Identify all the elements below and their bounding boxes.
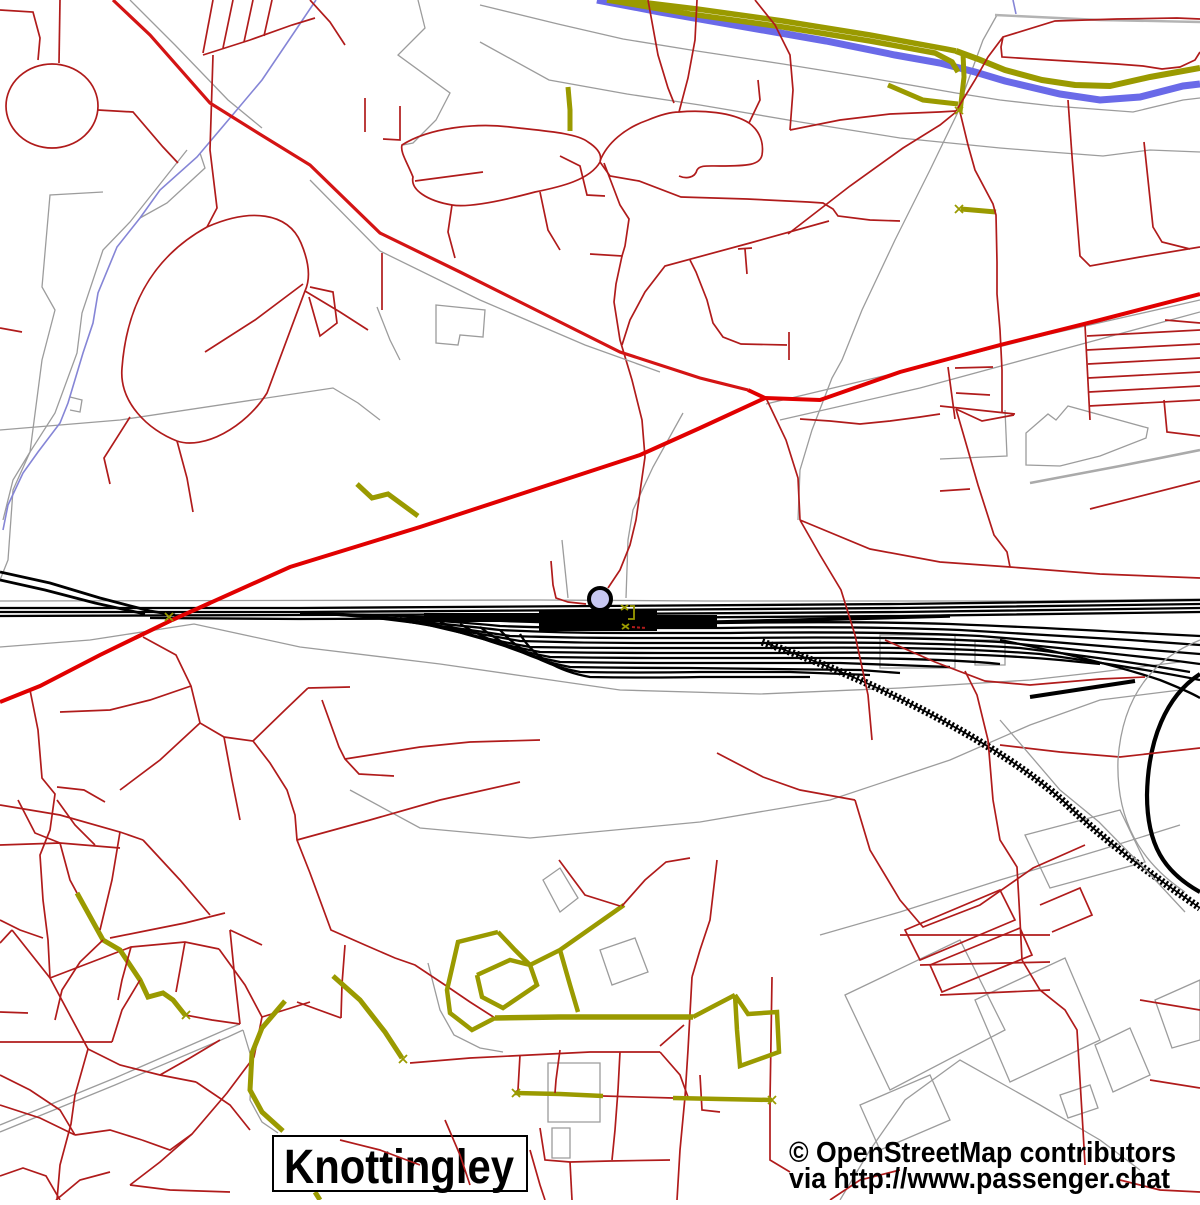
svg-text:Knottingley: Knottingley bbox=[284, 1141, 514, 1194]
svg-text:via http://www.passenger.chat: via http://www.passenger.chat bbox=[789, 1163, 1170, 1195]
